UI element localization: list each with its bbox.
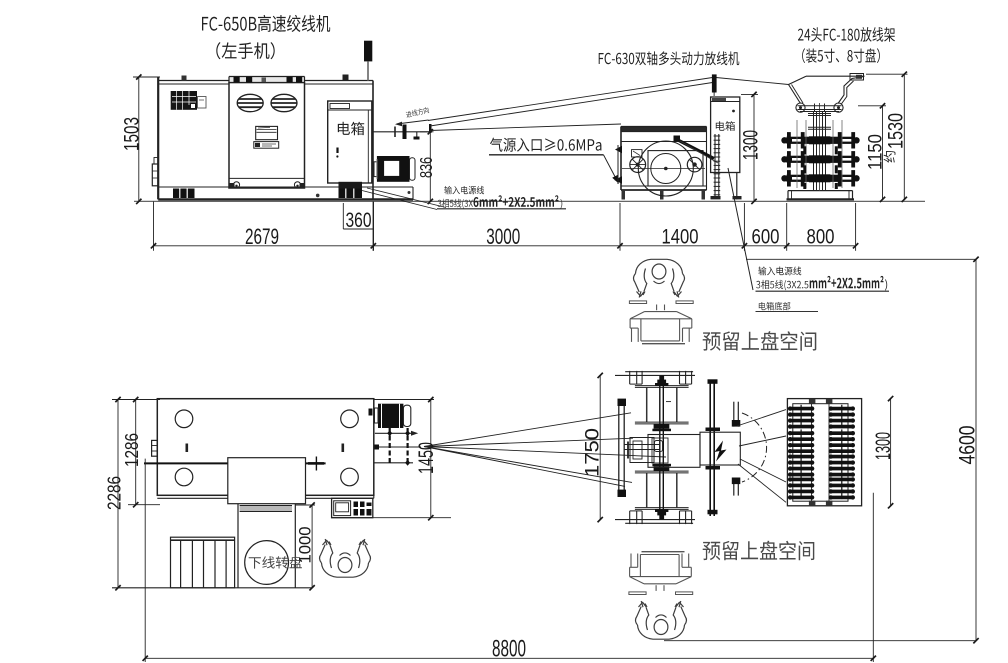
svg-text:8800: 8800 (492, 637, 526, 663)
svg-text:2286: 2286 (105, 476, 126, 510)
svg-text:800: 800 (807, 225, 835, 249)
svg-text:1300: 1300 (738, 130, 763, 160)
svg-text:1286: 1286 (122, 433, 143, 467)
svg-text:1300: 1300 (872, 432, 895, 460)
svg-text:836: 836 (416, 157, 436, 178)
svg-text:1150: 1150 (865, 134, 887, 170)
svg-text:1503: 1503 (119, 117, 144, 151)
svg-text:1450: 1450 (413, 442, 438, 474)
svg-text:4600: 4600 (955, 426, 980, 465)
svg-text:1530: 1530 (885, 113, 908, 149)
svg-text:1400: 1400 (662, 225, 699, 249)
svg-text:2679: 2679 (245, 224, 279, 249)
svg-text:600: 600 (752, 225, 780, 249)
svg-text:3000: 3000 (486, 224, 520, 249)
svg-text:1750: 1750 (582, 428, 604, 477)
svg-text:1000: 1000 (297, 527, 315, 564)
svg-text:360: 360 (346, 207, 372, 232)
